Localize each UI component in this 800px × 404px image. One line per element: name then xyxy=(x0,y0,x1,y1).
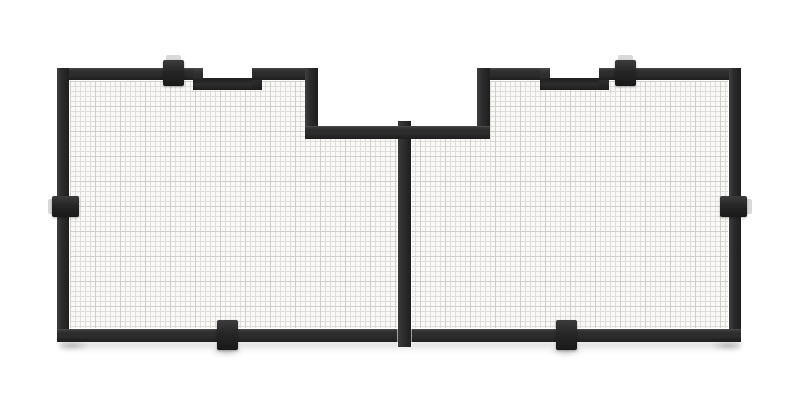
product-image xyxy=(0,0,800,404)
mounting-clip-top-right xyxy=(615,60,636,86)
center-divider-bar xyxy=(398,121,411,347)
ground-shadow-left-corner xyxy=(55,341,89,350)
mounting-clip-bottom-left xyxy=(217,320,238,350)
mounting-clip-side-left xyxy=(52,196,79,217)
mounting-clip-bottom-right xyxy=(556,320,577,350)
ground-shadow-right-corner xyxy=(711,341,745,350)
mounting-clip-top-left xyxy=(163,60,184,86)
notch-floor-rail xyxy=(305,126,490,139)
notch-cutout-background xyxy=(316,48,479,126)
mounting-clip-side-right xyxy=(720,196,747,217)
